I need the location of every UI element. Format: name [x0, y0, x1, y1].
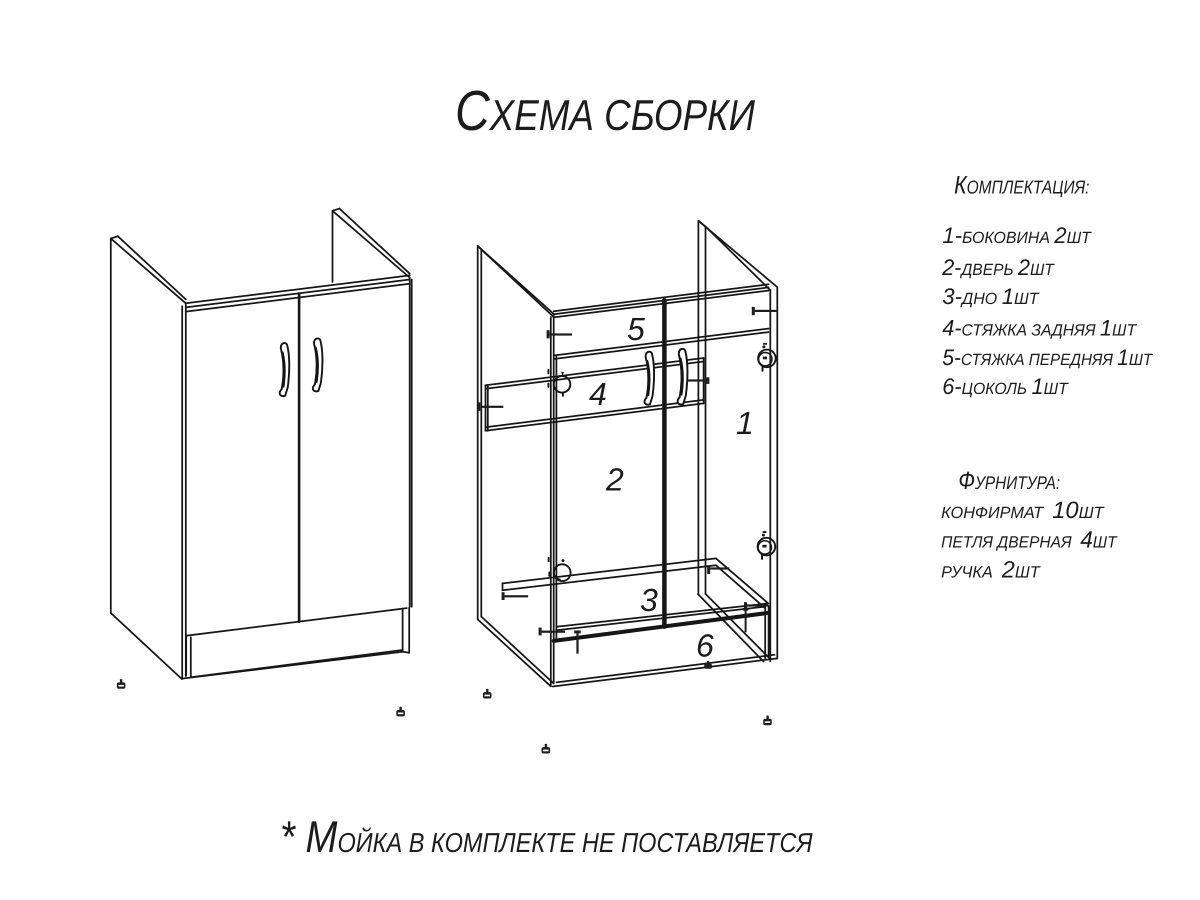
svg-text:РУЧКА 2ШТ: РУЧКА 2ШТ — [941, 558, 1041, 584]
svg-text:3-ДНО 1ШТ: 3-ДНО 1ШТ — [942, 284, 1039, 309]
svg-text:3: 3 — [640, 582, 658, 618]
svg-text:1: 1 — [736, 405, 754, 441]
svg-text:5-СТЯЖКА ПЕРЕДНЯЯ 1ШТ: 5-СТЯЖКА ПЕРЕДНЯЯ 1ШТ — [942, 345, 1153, 370]
svg-text:2: 2 — [605, 462, 624, 498]
svg-text:1-БОКОВИНА 2ШТ: 1-БОКОВИНА 2ШТ — [943, 223, 1092, 248]
svg-text:4-СТЯЖКА ЗАДНЯЯ 1ШТ: 4-СТЯЖКА ЗАДНЯЯ 1ШТ — [942, 316, 1137, 341]
svg-text:ПЕТЛЯ ДВЕРНАЯ 4ШТ: ПЕТЛЯ ДВЕРНАЯ 4ШТ — [941, 527, 1118, 553]
svg-text:СХЕМА СБОРКИ: СХЕМА СБОРКИ — [455, 79, 756, 142]
svg-text:ФУРНИТУРА:: ФУРНИТУРА: — [958, 467, 1060, 495]
svg-text:6-ЦОКОЛЬ 1ШТ: 6-ЦОКОЛЬ 1ШТ — [942, 374, 1069, 399]
svg-text:4: 4 — [589, 376, 607, 412]
svg-text:2-ДВЕРЬ 2ШТ: 2-ДВЕРЬ 2ШТ — [941, 255, 1055, 280]
svg-text:КОНФИРМАТ 10ШТ: КОНФИРМАТ 10ШТ — [941, 498, 1105, 524]
svg-text:5: 5 — [627, 311, 645, 347]
svg-text:* МОЙКА В КОМПЛЕКТЕ НЕ ПОСТАВЛ: * МОЙКА В КОМПЛЕКТЕ НЕ ПОСТАВЛЯЕТСЯ — [280, 813, 813, 862]
svg-text:КОМПЛЕКТАЦИЯ:: КОМПЛЕКТАЦИЯ: — [954, 171, 1089, 199]
svg-text:6: 6 — [696, 628, 714, 664]
